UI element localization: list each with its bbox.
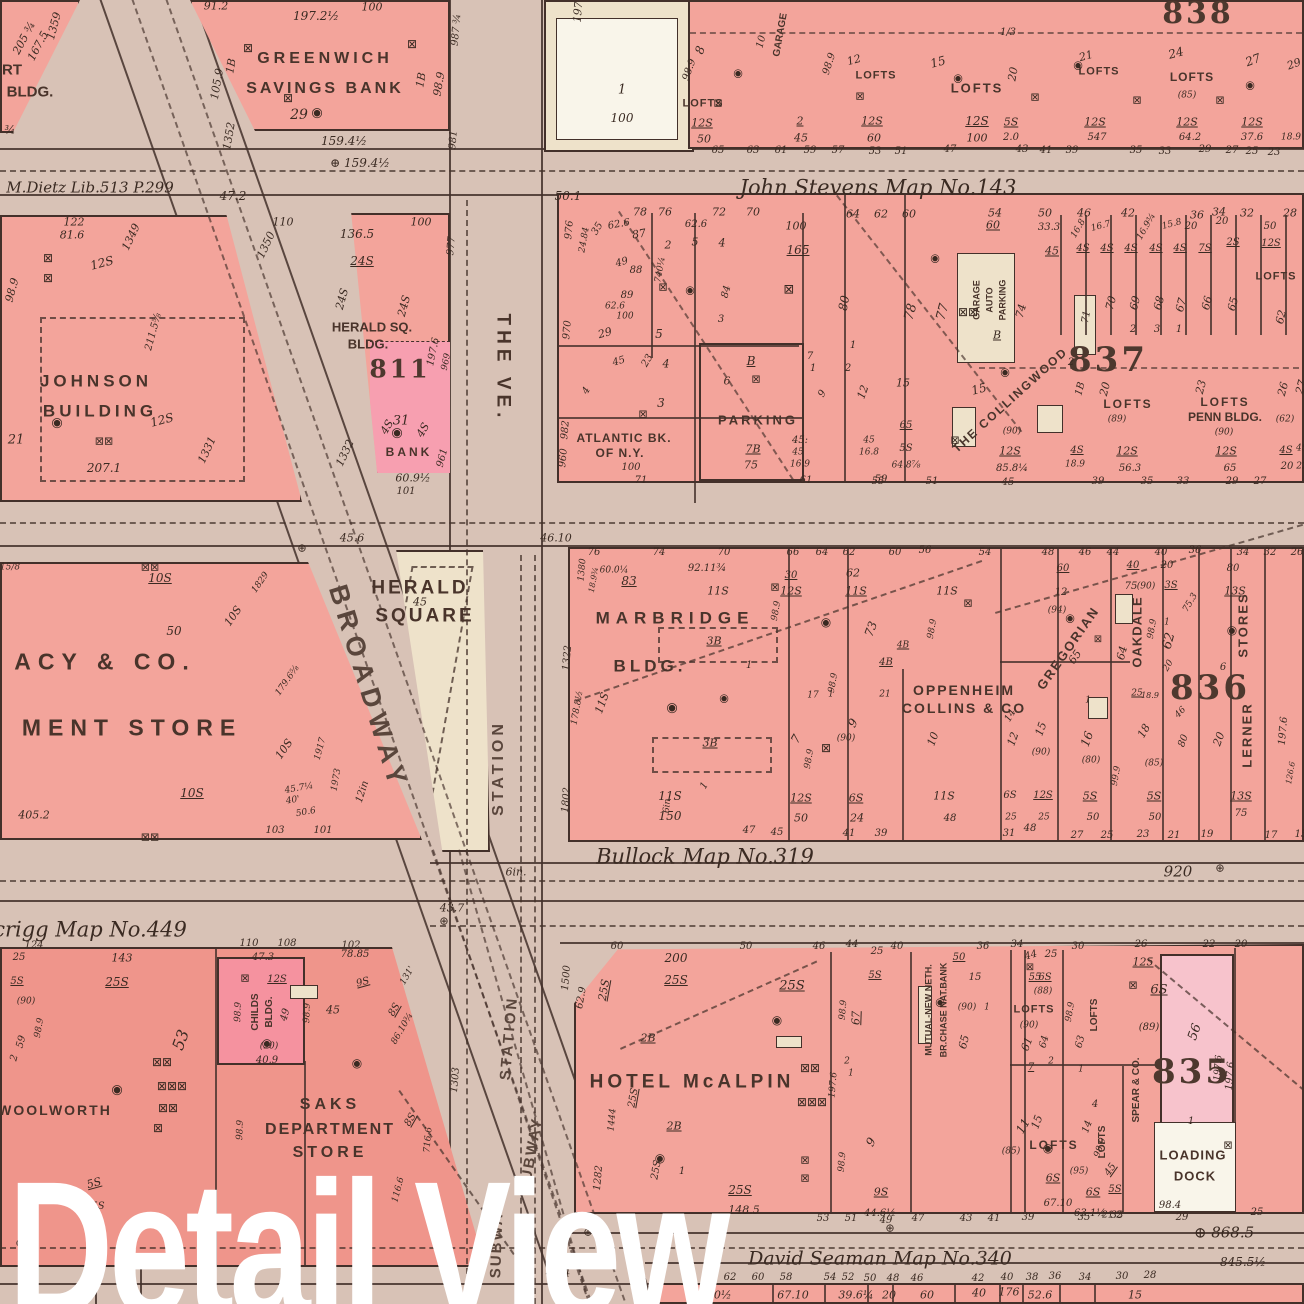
map-label: 29 [1176,1213,1189,1223]
map-label: 25S [664,974,688,986]
map-label: 63 [1075,1035,1088,1050]
map-label: 12S [1241,117,1263,128]
label-station: STATION [491,720,507,816]
map-label: 179.6⅝ [274,664,301,697]
label-lerner-stores: STORES [1237,592,1250,657]
map-label: 1331 [196,435,218,465]
map-label: ⊠ [1128,980,1137,991]
map-label: 6S [1003,791,1016,801]
map-label: 20 [1211,731,1226,748]
map-label: 1303 [450,1067,462,1093]
map-label: 24S [396,294,412,318]
map-label: 16.8 [859,449,879,458]
map-label: 51 [895,147,908,157]
map-label: ⊠ [1030,92,1039,103]
map-label: 4S [1100,244,1113,254]
map-label: 62.9 [575,986,589,1010]
map-label: 12S [1215,446,1237,457]
map-label: 75.3 [1182,592,1200,614]
map-label: 29 [1226,477,1239,487]
map-label: 98.9 [771,600,783,621]
map-label: (94) [1048,607,1066,616]
map-label: 4S [1173,244,1186,254]
map-label: ⊠ [43,272,53,284]
map-label: SAVINGS BANK [246,81,404,97]
map-label: 126.6 [1285,761,1297,785]
map-label: 21 [879,691,890,700]
map-label: 15 [929,54,947,70]
label-block-836: 836 [1170,671,1250,705]
map-label: 9 [817,389,829,400]
map-label: ◉ [1065,613,1075,624]
map-label: 98.9 [1147,618,1159,639]
map-label: 45 [771,828,784,838]
map-label: 4S [1076,244,1089,254]
map-label: 4S [1149,244,1162,254]
map-label: 10S [273,737,294,761]
map-label: 7S [1198,244,1211,254]
map-label: 740¼ [654,256,667,283]
map-label: 5S [1004,117,1019,128]
map-label: 64 [1115,645,1129,661]
map-label: (90) [17,998,35,1007]
label-hotel-mcalpin: HOTEL McALPIN [590,1073,795,1092]
map-label: 100 [362,2,383,13]
map-label: 1 [810,364,816,374]
map-label: 12S [861,116,883,127]
map-label: 1 [984,1004,990,1013]
map-label: 3S [1164,581,1177,591]
map-label: ⊠⊠⊠ [797,1096,827,1108]
map-label: 150 [659,810,682,822]
map-label: 970 [562,320,574,340]
map-label: 17 [807,692,818,701]
map-label: 1 [746,661,752,671]
map-label: 20 [1235,940,1248,950]
map-label: 4 [581,386,593,397]
map-label: 71 [1081,310,1093,324]
map-label: 18.9 [1141,692,1159,700]
label-block-838: 838 [1162,0,1234,29]
map-label: 10S [222,604,243,628]
map-label: 98.9 [804,748,816,769]
map-label: 1 [850,341,856,351]
map-label: 81.6 [60,230,85,241]
map-label: 105.9 [209,68,225,101]
map-label: 24.84 [578,227,591,254]
map-label: 25 [13,953,26,963]
map-label: 58 [780,1273,793,1283]
map-label: MENT STORE [22,717,242,740]
map-label: 4B [879,658,893,668]
map-label: 75 [1125,582,1138,592]
map-label: PENN BLDG. [1188,411,1262,423]
map-label: 60 [611,942,624,952]
map-label: 35 [590,221,605,237]
map-label: LOFTS [1170,71,1214,83]
map-label: 197.6 [426,337,442,367]
map-label: 3B [702,738,717,749]
map-label: ◉ [733,68,743,79]
map-label: 12S [1084,117,1106,128]
map-label: ⊠ [407,38,417,50]
map-label: 33 [1177,477,1190,487]
map-label: 70 [746,207,760,218]
map-label: 48 [1042,548,1055,558]
map-label: 78 [633,207,647,218]
map-label: 7B [745,444,760,455]
map-label: DEPARTMENT [265,1122,395,1138]
map-label: 23 [1137,830,1150,840]
map-label: SQUARE [375,607,474,626]
map-label: 57 [832,146,845,156]
map-label: 98.9 [681,58,698,82]
map-label: 62 [843,548,856,558]
map-label: 34 [1237,548,1250,558]
map-label: 80 [1227,564,1240,574]
map-label: 2S [1226,238,1239,248]
map-label: 46 [813,942,826,952]
map-label: 17 [1265,831,1278,841]
map-label: 100 [616,313,633,322]
map-label: 32 [1264,548,1277,558]
map-label: 6S [1086,1187,1101,1198]
map-label: 66 [1200,295,1214,311]
map-label: 29 [1199,145,1212,155]
map-label: 49 [280,1008,293,1023]
map-label: 61 [800,476,813,486]
map-label: 9S [874,1187,889,1198]
map-label: 48 [944,814,957,824]
map-label: ⊠ [1094,635,1102,645]
map-label: 67 [850,1011,861,1025]
map-label: ⊠⊠ [958,306,978,318]
map-label: 1350 [255,230,277,260]
map-label: 50 [1264,222,1277,232]
map-label: 67 [1174,297,1188,313]
map-label: ⊠ [658,282,667,293]
map-label: 98.9 [822,52,838,76]
map-label: 9S [355,976,370,989]
map-label: 30 [1116,1272,1129,1282]
map-label: 3 [657,397,665,409]
map-label: ⊠⊠ [95,436,113,447]
map-label: 5 [692,237,699,248]
map-label: 101 [313,826,332,836]
map-label: ◉ [1245,80,1255,91]
map-label: 48 [1024,824,1037,834]
map-label: 60 [752,1273,765,1283]
map-label: ⊠ [713,98,722,109]
map-label: 7 [807,352,813,362]
map-label: (90) [1003,428,1021,437]
map-label: 40.9 [256,1056,278,1066]
map-label: 22 [1203,940,1216,950]
map-label: 50 [740,942,753,952]
map-label: ◉ [772,1014,782,1026]
map-label: 47 [912,1214,925,1224]
map-label: ⊠⊠⊠ [157,1080,187,1092]
map-label: 124 [24,941,43,951]
map-label: 197 [572,1,585,23]
map-label: 15 [896,378,910,389]
map-label: (90) [837,735,855,744]
map-label: 22 [1296,463,1304,472]
map-label: 88 [630,266,643,276]
map-label: 11S [707,586,729,597]
map-label: ◉ [685,285,695,296]
map-label: 29 [1286,56,1303,71]
map-label: ⊠ [855,91,864,102]
map-label: 1 [1085,697,1091,706]
map-label: 62.6 [607,218,631,232]
map-label: 108 [277,939,296,949]
map-label: 45 [1002,478,1015,488]
map-label: 40 [1127,561,1140,571]
map-label: 12in [355,780,371,804]
map-label: 1500 [561,965,573,991]
map-label: 4B [897,642,909,651]
map-label: 50 [1038,208,1052,219]
map-label: 39.6¼ [838,1290,873,1301]
map-label: 64.2 [1179,133,1201,143]
map-label: 4S [415,421,432,439]
map-label: RT [2,63,22,78]
map-label: 12 [1005,731,1020,748]
map-label: 25S [779,980,804,993]
map-label: 84 [721,285,734,300]
map-label: 21 [8,434,25,447]
label-the-collingwood: THE COLLINGWOOD [950,345,1070,454]
map-label: 1973 [331,768,344,792]
label-bullock-map: Bullock Map No.319 [596,847,814,868]
map-label: 50 [697,134,711,145]
map-label: 80 [1177,733,1191,748]
map-label: 18 [1136,722,1153,740]
map-label: 42 [1121,208,1135,219]
map-label: 100 [411,217,432,228]
map-label: 11S [658,790,682,802]
map-label: 27 [1254,477,1267,487]
map-canvas: RTBLDG.205 ¾167.51359¾91.2197.2½1001B105… [0,0,1304,1304]
map-label: 30 [785,571,798,581]
map-label: 1B [414,72,427,89]
map-label: 5S [10,977,23,987]
map-label: 65 [957,1034,971,1050]
map-label: (90) [1032,749,1050,758]
map-label: 1917 [314,737,329,761]
map-label: 20 [882,1290,896,1301]
map-label: 45.6 [340,533,365,544]
label-greenwich-savings-bank: GREENWICH [257,51,393,67]
map-label: 101 [396,487,415,497]
map-label: (89) [1108,416,1126,425]
map-label: ⊠ [963,598,972,609]
map-label: B [993,330,1001,341]
map-label: 37.6 [1241,133,1263,143]
map-label: 50 [166,625,181,637]
map-label: 1 [699,781,711,792]
map-label: 69 [1128,295,1142,311]
map-label: 2 [9,1054,20,1063]
map-label: (85) [1002,1148,1020,1157]
map-label: 2 [1048,1058,1054,1067]
map-label: ◉ [111,1084,122,1097]
map-label: 18.9 [1281,134,1301,143]
map-label: 131' [399,965,417,987]
map-label: 50.6 [295,807,316,819]
map-label: 67.10 [777,1290,809,1301]
map-label: 25 [1246,147,1259,157]
map-label: 1 [828,691,834,700]
map-label: ◉ [262,1037,272,1049]
map-label: 60 [1057,564,1070,574]
map-label: 65 [1224,464,1237,474]
map-label: 13S [1230,791,1252,802]
map-label: 1380 [578,558,589,582]
map-label: 54 [979,548,992,558]
map-label: 39 [1092,477,1105,487]
map-label: 98.9 [4,277,21,304]
label-oakdale: OAKDALE [1131,596,1144,667]
map-label: 2 [797,116,804,127]
map-label: 35 [1130,146,1143,156]
map-label: (95) [1070,1168,1088,1177]
map-label: 42 [972,1274,985,1284]
map-label: ◉ [391,427,402,440]
map-label: 122 [64,217,85,228]
map-label: 47.2 [220,190,247,202]
map-label: 91.2 [204,1,229,12]
map-label: 25S [728,1184,752,1196]
map-label: 176 [999,1287,1020,1298]
map-label: 977 [446,236,458,256]
map-label: 969 [441,353,453,372]
map-label: 68 [1152,295,1166,311]
map-label: 15 [1033,721,1048,738]
map-label: 8S [387,1002,402,1018]
map-label: 98.9 [431,71,446,97]
map-label: 34 [1079,1273,1092,1283]
map-label: 25 [1101,831,1114,841]
map-label: 71 [635,476,648,486]
map-label: 14 [1081,1119,1095,1134]
map-label: 63 [747,146,760,156]
map-label: 99.9 [1111,765,1123,786]
map-label: 62.6 [605,303,625,312]
map-label: ⊠⊠ [152,1056,172,1068]
map-label: GARAGE [772,13,789,58]
map-label: 9 [864,1136,878,1149]
map-label: 24 [850,813,864,824]
map-label: 43 [1016,145,1029,155]
map-label: 6 [1220,663,1226,673]
map-label: 98.4 [1159,1201,1181,1211]
map-label: 89 [621,291,634,301]
map-label: ⊠ [153,1122,163,1134]
map-label: 53 [869,147,882,157]
map-label: (90) [958,1004,976,1013]
map-label: 78 [903,302,920,321]
map-label: 28 [1144,1271,1157,1281]
map-label: 25S [105,976,129,988]
map-label: 27 [1071,831,1084,841]
map-label: 25 [1038,814,1049,823]
map-label: ⊠⊠ [158,1102,178,1114]
map-label: 178.8½ [571,690,586,726]
map-label: 20 [1006,66,1019,82]
map-label: 74 [1014,303,1028,319]
map-label: 40 [1001,1273,1014,1283]
map-label: 32 [1240,208,1254,219]
map-label: 26 [1291,548,1304,558]
map-label: 11S [933,791,955,802]
label-johnson-building: JOHNSON [40,373,152,390]
map-label: 25S [627,1087,640,1108]
map-label: 35 [1078,1213,1091,1223]
map-label: 35 [1141,477,1154,487]
label-david-seaman-map: David Seaman Map No.340 [748,1250,1012,1269]
map-label: 26 [1276,381,1290,397]
label-spear-co: SPEAR & CO. [1132,1057,1142,1122]
map-label: ⊠ [240,973,249,984]
map-label: 159.4½ [321,135,367,147]
map-label: BR.CHASE NAT.BANK [940,963,949,1058]
map-label: 52.6 [1028,1290,1053,1301]
map-label: 18.9 [1065,461,1085,470]
map-label: 41 [1040,146,1053,156]
map-label: ◉ [352,1057,362,1069]
map-label: 24S [334,287,350,311]
map-label: 16 [1079,730,1096,748]
map-label: 54 [824,1273,837,1283]
map-label: (85) [1145,760,1163,769]
map-label: 15 [970,381,988,397]
map-label: 65 [900,421,913,431]
map-label: 75 [744,460,758,471]
map-label: 920 [1164,865,1193,880]
map-label: 9 [846,717,860,730]
map-label: (88) [1034,988,1052,997]
map-label: LOFTS [1078,67,1119,78]
map-label: 33.3 [1038,223,1060,233]
map-label: 1359 [45,11,63,41]
map-label: 87 [631,227,647,240]
map-label: 47 [743,826,756,836]
map-label: 64 [846,209,860,220]
map-label: ◉ [1043,1142,1053,1154]
label-macy: ACY & CO. [14,651,195,674]
map-label: ⊠ [283,92,293,104]
map-label: 961 [436,447,451,468]
map-label: ¾ [5,125,16,136]
label-bank: BANK [386,446,433,458]
map-label: 43 [960,1214,973,1224]
map-label: ⊠ [1223,1140,1232,1151]
map-label: 6S [849,793,864,804]
label-station-2: STATION [498,995,520,1081]
map-label: 547 [1087,133,1106,143]
map-label: 12S [267,975,287,985]
map-label: 30 [1072,942,1085,952]
map-label: 981 [448,130,460,150]
map-label: 23 [1268,148,1281,158]
map-label: 45 [326,1005,340,1016]
map-label: 11S [845,586,867,597]
map-label: 46.10 [540,533,572,544]
map-label: LOFTS [1090,999,1100,1032]
map-label: 56 [1186,1022,1204,1042]
